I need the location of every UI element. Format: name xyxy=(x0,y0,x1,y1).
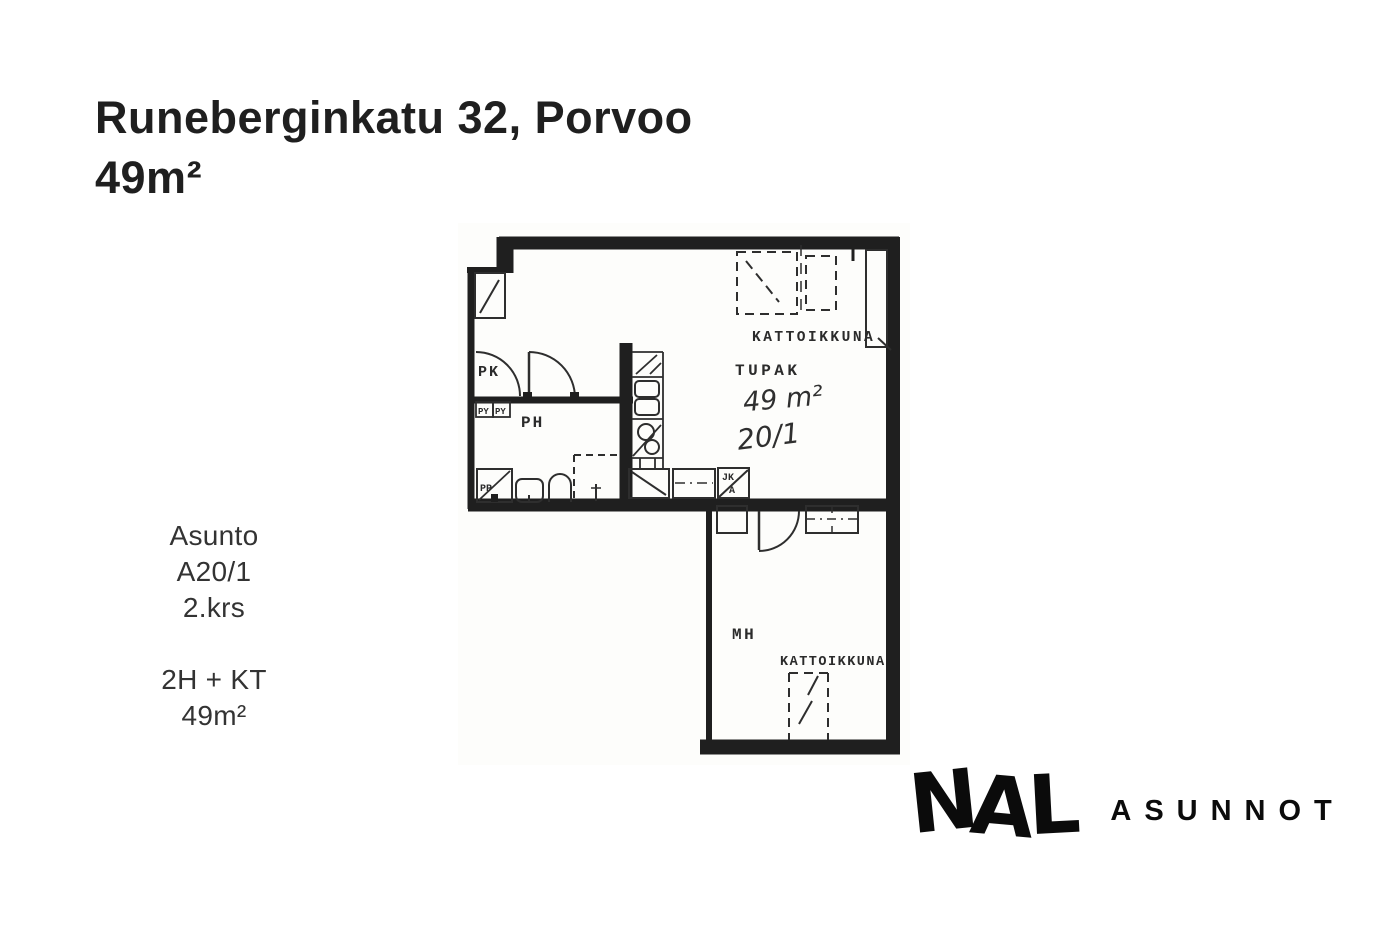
label-kattoikkuna-top: KATTOIKKUNA xyxy=(752,330,875,346)
label-pp: PP xyxy=(480,484,492,495)
label-py1: PY xyxy=(478,407,489,417)
label-tupak: TUPAK xyxy=(735,362,801,380)
logo: N A L ASUNNOT xyxy=(910,768,1345,844)
logo-suffix: ASUNNOT xyxy=(1110,795,1344,828)
info-gap xyxy=(104,626,324,662)
info-line-floor: 2.krs xyxy=(104,590,324,626)
label-pk: PK xyxy=(478,364,500,381)
label-jk: JK xyxy=(722,473,734,484)
plan-background xyxy=(458,223,910,765)
label-kattoikkuna-bottom: KATTOIKKUNA xyxy=(780,655,886,670)
page: Runeberginkatu 32, Porvoo 49m² Asunto A2… xyxy=(0,0,1400,933)
page-title: Runeberginkatu 32, Porvoo xyxy=(95,88,693,148)
info-line-asunto: Asunto xyxy=(104,518,324,554)
door-hinge-left xyxy=(523,392,532,401)
header: Runeberginkatu 32, Porvoo 49m² xyxy=(95,88,693,208)
label-py2: PY xyxy=(495,407,506,417)
label-mh: MH xyxy=(732,626,756,644)
washer-mark xyxy=(491,494,498,502)
label-ph: PH xyxy=(521,414,544,432)
floorplan: PK PY PY PH PP xyxy=(458,223,910,765)
info-line-area: 49m² xyxy=(104,698,324,734)
logo-letter-n: N xyxy=(906,762,978,844)
door-hinge-right xyxy=(570,392,579,401)
logo-letter-l: L xyxy=(1026,767,1078,845)
logo-letter-a: A xyxy=(967,768,1033,849)
info-line-unit: A20/1 xyxy=(104,554,324,590)
apartment-info: Asunto A20/1 2.krs 2H + KT 49m² xyxy=(104,518,324,734)
info-line-rooms: 2H + KT xyxy=(104,662,324,698)
page-subtitle-area: 49m² xyxy=(95,148,693,208)
logo-nal-wordmark: N A L xyxy=(910,768,1076,844)
label-jk2: A xyxy=(729,486,735,497)
floorplan-svg: PK PY PY PH PP xyxy=(458,223,910,765)
